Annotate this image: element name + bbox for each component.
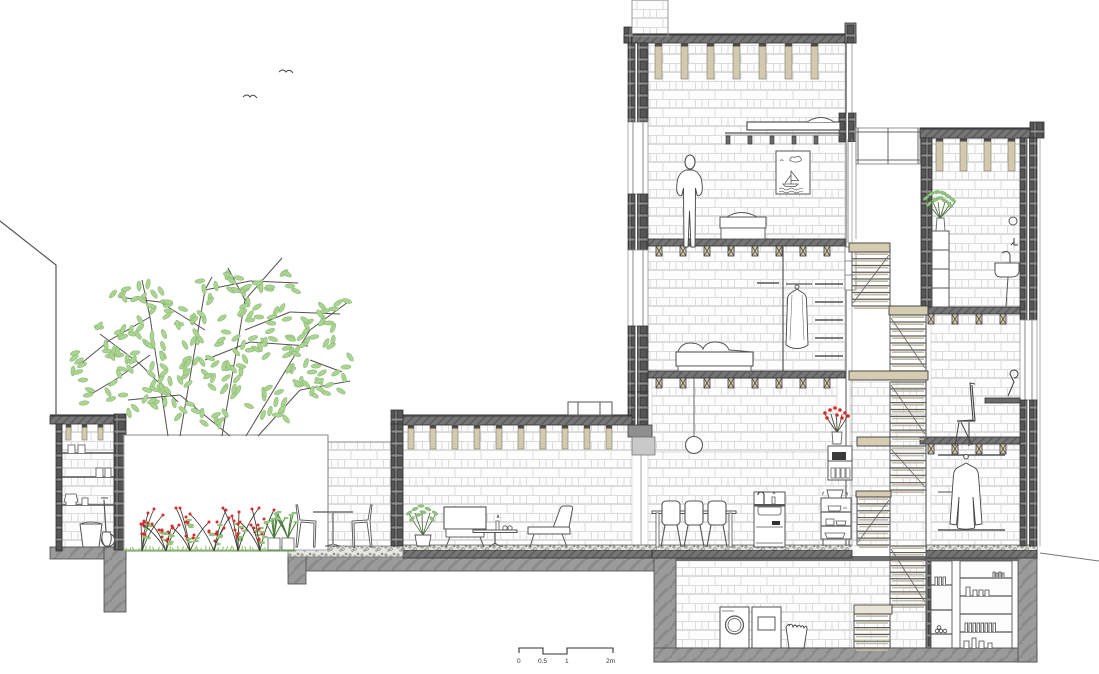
svg-text:0.5: 0.5	[538, 658, 547, 665]
svg-text:2m: 2m	[606, 658, 615, 665]
svg-text:1: 1	[565, 658, 569, 665]
svg-text:0: 0	[517, 658, 521, 665]
